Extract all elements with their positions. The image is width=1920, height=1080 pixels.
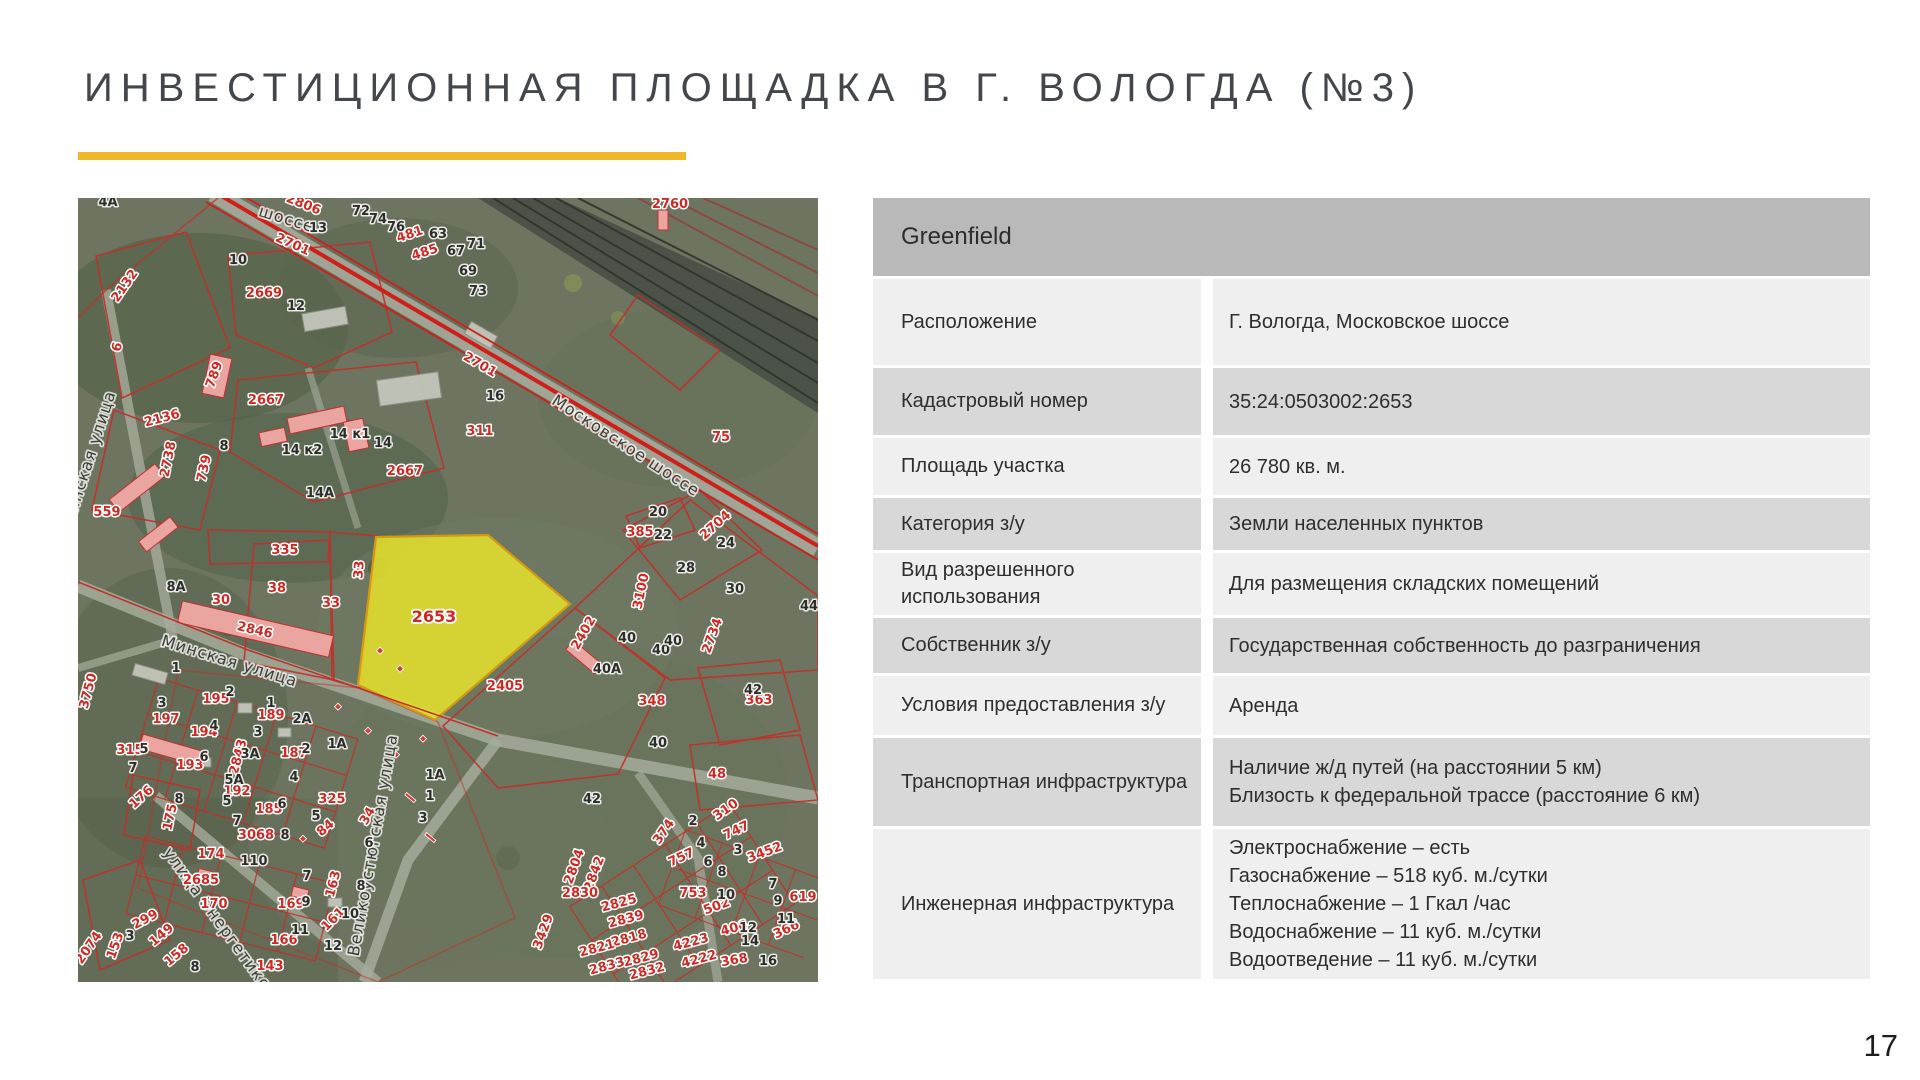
house-number-label: 7 [768, 877, 777, 892]
parcel-number-label: 385 [626, 525, 653, 540]
satellite-map: шоссеМосковское шоссеМинская улицаМинска… [78, 198, 818, 982]
row-label-cell: Условия предоставления з/у [873, 676, 1201, 735]
table-row: Условия предоставления з/уАренда [873, 676, 1870, 735]
house-number-label: 1А [327, 737, 346, 752]
house-number-label: 14 [374, 436, 392, 451]
parcel-number-label: 38 [268, 581, 286, 596]
house-number-label: 3 [733, 843, 742, 858]
house-number-label: 8 [190, 960, 199, 975]
row-value-cell: Наличие ж/д путей (на расстоянии 5 км)Бл… [1213, 738, 1870, 826]
parcel-number-label: 348 [638, 694, 665, 709]
parcel-number-label: 2760 [652, 198, 688, 212]
house-number-label: 5 [139, 742, 148, 757]
house-number-label: 42 [744, 683, 762, 698]
parcel-number-label: 335 [271, 543, 298, 558]
house-number-label: 6 [703, 855, 712, 870]
table-row: РасположениеГ. Вологда, Московское шоссе [873, 279, 1870, 365]
table-row: Инженерная инфраструктураЭлектроснабжени… [873, 829, 1870, 979]
parcel-number-label: 174 [197, 847, 224, 862]
house-number-label: 44 [800, 599, 818, 614]
row-value-line: Аренда [1229, 692, 1870, 720]
house-number-label: 8 [174, 792, 183, 807]
parcel-number-label: 2830 [562, 886, 598, 901]
row-value-cell: Государственная собственность до разгран… [1213, 618, 1870, 673]
parcel-number-label: 143 [256, 959, 283, 974]
house-number-label: 40 [649, 736, 667, 751]
house-number-label: 69 [459, 264, 477, 279]
house-number-label: 6 [199, 750, 208, 765]
house-number-label: 8 [356, 879, 365, 894]
parcel-number-label: 2685 [183, 873, 219, 888]
row-value-line: 26 780 кв. м. [1229, 453, 1870, 481]
parcel-number-label: 2667 [248, 393, 284, 408]
row-value-cell: 26 780 кв. м. [1213, 438, 1870, 495]
house-number-label: 3 [418, 811, 427, 826]
house-number-label: 14А [306, 486, 334, 501]
row-value-cell: Земли населенных пунктов [1213, 498, 1870, 550]
house-number-label: 10 [341, 907, 359, 922]
house-number-label: 74 [369, 212, 387, 227]
house-number-label: 4 [289, 770, 298, 785]
house-number-label: 40 [618, 631, 636, 646]
table-row: Собственник з/уГосударственная собственн… [873, 618, 1870, 673]
house-number-label: 3 [157, 696, 166, 711]
house-number-label: 30 [726, 582, 744, 597]
house-number-label: 5 [222, 794, 231, 809]
row-value-line: Государственная собственность до разгран… [1229, 632, 1870, 660]
row-label-cell: Собственник з/у [873, 618, 1201, 673]
table-row: Вид разрешенного использованияДля размещ… [873, 553, 1870, 615]
house-number-label: 72 [352, 204, 370, 219]
row-value-line: Теплоснабжение – 1 Гкал /час [1229, 890, 1870, 918]
row-value-cell: Г. Вологда, Московское шоссе [1213, 279, 1870, 365]
parcel-number-label: 170 [200, 897, 227, 912]
table-row: Категория з/уЗемли населенных пунктов [873, 498, 1870, 550]
row-label-cell: Кадастровый номер [873, 368, 1201, 435]
house-number-label: 1 [425, 789, 434, 804]
cadastral-map-image: шоссеМосковское шоссеМинская улицаМинска… [78, 198, 818, 982]
house-number-label: 7 [232, 814, 241, 829]
row-value-cell: Аренда [1213, 676, 1870, 735]
house-number-label: 4 [209, 719, 218, 734]
parcel-number-label: 3068 [238, 828, 274, 843]
parcel-number-label: 197 [152, 712, 179, 727]
house-number-label: 28 [677, 561, 695, 576]
house-number-label: 6 [364, 836, 373, 851]
parcel-number-label: 753 [679, 886, 706, 901]
house-number-label: 12 [287, 299, 305, 314]
house-number-label: 73 [469, 284, 487, 299]
house-number-label: 14 [741, 934, 759, 949]
row-label-cell: Транспортная инфраструктура [873, 738, 1201, 826]
parcel-number-label: 48 [708, 767, 726, 782]
slide: ИНВЕСТИЦИОННАЯ ПЛОЩАДКА В Г. ВОЛОГДА (№3… [0, 0, 1920, 1080]
row-value-line: Водоснабжение – 11 куб. м./сутки [1229, 918, 1870, 946]
parcel-number-label: 2405 [487, 679, 523, 694]
house-number-label: 1А [425, 768, 444, 783]
house-number-label: 4А [98, 198, 117, 210]
table-row: Транспортная инфраструктураНаличие ж/д п… [873, 738, 1870, 826]
house-number-label: 22 [654, 528, 672, 543]
table-row: Площадь участка26 780 кв. м. [873, 438, 1870, 495]
row-value-cell: Электроснабжение – естьГазоснабжение – 5… [1213, 829, 1870, 979]
house-number-label: 5 [311, 809, 320, 824]
table-header-greenfield: Greenfield [873, 198, 1870, 276]
row-value-cell: Для размещения складских помещений [1213, 553, 1870, 615]
house-number-label: 11 [777, 912, 795, 927]
house-number-label: 1 [266, 696, 275, 711]
house-number-label: 7 [302, 869, 311, 884]
house-number-label: 3 [253, 725, 262, 740]
house-number-label: 76 [387, 220, 405, 235]
row-label-cell: Инженерная инфраструктура [873, 829, 1201, 979]
house-number-label: 63 [429, 227, 447, 242]
house-number-label: 10 [229, 253, 247, 268]
parcel-number-label: 559 [93, 505, 120, 520]
house-number-label: 67 [447, 244, 465, 259]
house-number-label: 2 [301, 742, 310, 757]
parcel-number-label: 75 [712, 430, 730, 445]
house-number-label: 16 [759, 954, 777, 969]
house-number-label: 40 [664, 634, 682, 649]
house-number-label: 2 [225, 685, 234, 700]
row-value-line: Водоотведение – 11 куб. м./сутки [1229, 946, 1870, 974]
row-value-line: Земли населенных пунктов [1229, 510, 1870, 538]
house-number-label: 12 [324, 939, 342, 954]
parcel-number-label: 33 [322, 596, 340, 611]
row-label-cell: Расположение [873, 279, 1201, 365]
row-label-cell: Категория з/у [873, 498, 1201, 550]
house-number-label: 7 [128, 761, 137, 776]
parcel-number-label: 619 [789, 890, 816, 905]
row-value-line: Электроснабжение – есть [1229, 834, 1870, 862]
house-number-label: 10 [717, 888, 735, 903]
title-accent-underline [78, 152, 686, 160]
parcel-number-label: 33 [351, 560, 368, 579]
house-number-label: 24 [717, 536, 735, 551]
row-value-line: 35:24:0503002:2653 [1229, 388, 1870, 416]
house-number-label: 3 [125, 929, 134, 944]
house-number-label: 8 [717, 865, 726, 880]
row-value-line: Наличие ж/д путей (на расстоянии 5 км) [1229, 754, 1870, 782]
row-value-line: Г. Вологда, Московское шоссе [1229, 308, 1870, 336]
highlighted-parcel-number: 2653 [412, 607, 457, 626]
house-number-label: 110 [240, 854, 267, 869]
house-number-label: 8 [219, 439, 228, 454]
page-title: ИНВЕСТИЦИОННАЯ ПЛОЩАДКА В Г. ВОЛОГДА (№3… [84, 66, 1423, 111]
house-number-label: 40А [593, 662, 621, 677]
house-number-label: 3А [240, 747, 259, 762]
row-value-line: Для размещения складских помещений [1229, 570, 1870, 598]
row-value-cell: 35:24:0503002:2653 [1213, 368, 1870, 435]
parcel-number-label: 311 [466, 424, 493, 439]
parcel-number-label: 2669 [246, 286, 282, 301]
row-value-line: Близость к федеральной трассе (расстояни… [1229, 782, 1870, 810]
row-value-line: Газоснабжение – 518 куб. м./сутки [1229, 862, 1870, 890]
house-number-label: 13 [309, 221, 327, 236]
house-number-label: 5А [224, 773, 243, 788]
parcel-info-table: Greenfield РасположениеГ. Вологда, Моско… [873, 198, 1870, 979]
row-label-cell: Вид разрешенного использования [873, 553, 1201, 615]
house-number-label: 16 [486, 389, 504, 404]
table-row: Кадастровый номер35:24:0503002:2653 [873, 368, 1870, 435]
house-number-label: 2А [292, 712, 311, 727]
parcel-number-label: 325 [318, 792, 345, 807]
parcel-number-label: 30 [212, 593, 230, 608]
house-number-label: 9 [301, 895, 310, 910]
house-number-label: 8А [166, 580, 185, 595]
parcel-number-label: 2667 [387, 464, 423, 479]
house-number-label: 11 [291, 923, 309, 938]
house-number-label: 14 к2 [282, 443, 323, 458]
page-number: 17 [1864, 1028, 1898, 1064]
house-number-label: 14 к1 [330, 427, 371, 442]
house-number-label: 8 [280, 828, 289, 843]
row-label-cell: Площадь участка [873, 438, 1201, 495]
house-number-label: 71 [467, 237, 485, 252]
house-number-label: 42 [583, 792, 601, 807]
house-number-label: 1 [171, 661, 180, 676]
house-number-label: 4 [696, 836, 705, 851]
house-number-label: 20 [649, 505, 667, 520]
house-number-label: 2 [688, 814, 697, 829]
house-number-label: 6 [277, 797, 286, 812]
house-number-label: 9 [773, 894, 782, 909]
